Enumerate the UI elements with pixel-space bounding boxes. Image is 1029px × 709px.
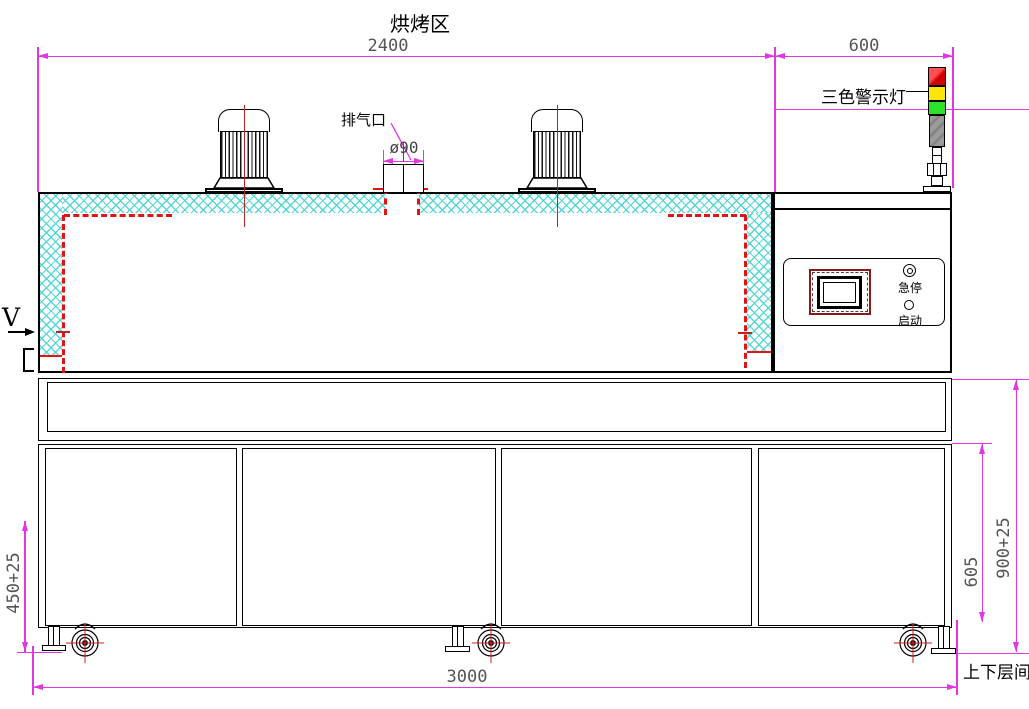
chamber-tick-right	[738, 332, 752, 334]
warning-light-yellow	[928, 86, 946, 101]
warning-light-green	[928, 101, 946, 115]
arrow-450-bottom	[22, 642, 28, 652]
arrow-900-bottom	[1013, 642, 1019, 652]
dim-line-900	[1016, 380, 1017, 652]
dim-text-600: 600	[834, 37, 894, 55]
dim-line-3000	[33, 687, 957, 688]
warning-light-leader	[906, 91, 929, 92]
chamber-dashed-top-left	[64, 214, 172, 217]
exhaust-port-divider	[403, 164, 404, 193]
dim-text-605: 605	[963, 532, 981, 612]
chamber-dashed-right	[744, 215, 747, 368]
cabinet-door-3	[501, 448, 752, 626]
arrow-2400-left	[38, 53, 48, 59]
warning-light-flange	[923, 186, 951, 192]
emergency-stop-label: 急停	[894, 279, 926, 296]
arrow-450-top	[22, 521, 28, 531]
arrow-900-top	[1013, 380, 1019, 390]
cabinet-door-4	[758, 448, 945, 626]
dim-line-450	[24, 521, 25, 652]
oven-body	[38, 192, 773, 373]
cabinet-door-1	[45, 448, 237, 626]
ext-line-left	[37, 47, 38, 192]
exhaust-duct-gap	[386, 194, 419, 213]
leveling-foot-left-stem	[48, 626, 60, 646]
direction-label: V	[2, 303, 20, 332]
dim-text-900: 900+25	[995, 503, 1013, 593]
dim-text-450: 450+25	[5, 538, 23, 628]
leveling-foot-mid-stem	[452, 626, 464, 647]
dim-line-600	[775, 56, 953, 57]
insulation-right-bottom-line	[747, 351, 771, 353]
zone-title: 烘烤区	[390, 8, 450, 37]
ext-line-mid	[774, 47, 775, 192]
chamber-dashed-left	[62, 215, 65, 373]
start-label: 启动	[894, 312, 926, 329]
insulation-left-bottom-line	[40, 355, 62, 357]
control-section-top-line	[775, 208, 950, 210]
chamber-dashed-top-right	[668, 214, 746, 217]
leveling-foot-right-pad	[931, 648, 956, 654]
emergency-stop-button-inner	[907, 268, 913, 274]
caster-mid	[471, 621, 511, 663]
arrow-600-left	[775, 53, 785, 59]
exhaust-label: 排气口	[341, 109, 386, 130]
warning-light-foot	[931, 176, 943, 186]
dim-text-3000: 3000	[432, 668, 502, 686]
ext-3000-left	[32, 646, 33, 695]
entry-bracket-top	[23, 348, 34, 350]
entry-bracket-bottom	[23, 370, 34, 372]
leveling-foot-mid-pad	[445, 646, 470, 652]
ground-ext-left	[17, 652, 62, 653]
ground-ext-right	[953, 653, 1029, 654]
dim-text-2400: 2400	[353, 37, 423, 55]
leveling-foot-right-stem	[938, 626, 950, 649]
conveyor-table-inner	[47, 382, 946, 432]
cabinet-door-2	[242, 448, 496, 626]
arrow-605-top	[979, 444, 985, 454]
caster-right	[893, 621, 933, 663]
start-button	[904, 300, 914, 310]
layers-label: 上下层间	[963, 658, 1029, 683]
ext-line-right-horizontal	[775, 109, 1029, 110]
engineering-drawing-oven-side-view: 2400 600 3000 450+25 605 900+25	[0, 0, 1029, 709]
warning-light-nut	[927, 163, 947, 176]
leveling-foot-left-pad	[42, 645, 66, 651]
chamber-tick-left	[56, 331, 70, 333]
ext-900-top	[950, 379, 1029, 380]
arrow-605-bottom	[979, 612, 985, 622]
warning-light-red	[928, 67, 946, 86]
warning-light-body	[929, 115, 945, 147]
ext-line-right	[952, 47, 953, 188]
hmi-screen	[823, 282, 856, 303]
motor1-centerline	[244, 105, 245, 227]
direction-arrow-head	[25, 328, 35, 336]
motor2-centerline	[557, 105, 558, 227]
direction-arrow-line	[8, 331, 26, 333]
arrow-3000-left	[33, 684, 43, 690]
dim-line-605	[982, 444, 983, 622]
caster-left	[65, 621, 105, 663]
entry-bracket-side	[23, 348, 25, 372]
warning-light-label: 三色警示灯	[810, 83, 906, 108]
exhaust-dia-text: ø90	[376, 139, 432, 157]
ext-605-top	[952, 443, 992, 444]
dim-line-2400	[38, 56, 775, 57]
ext-3000-right	[956, 620, 957, 695]
